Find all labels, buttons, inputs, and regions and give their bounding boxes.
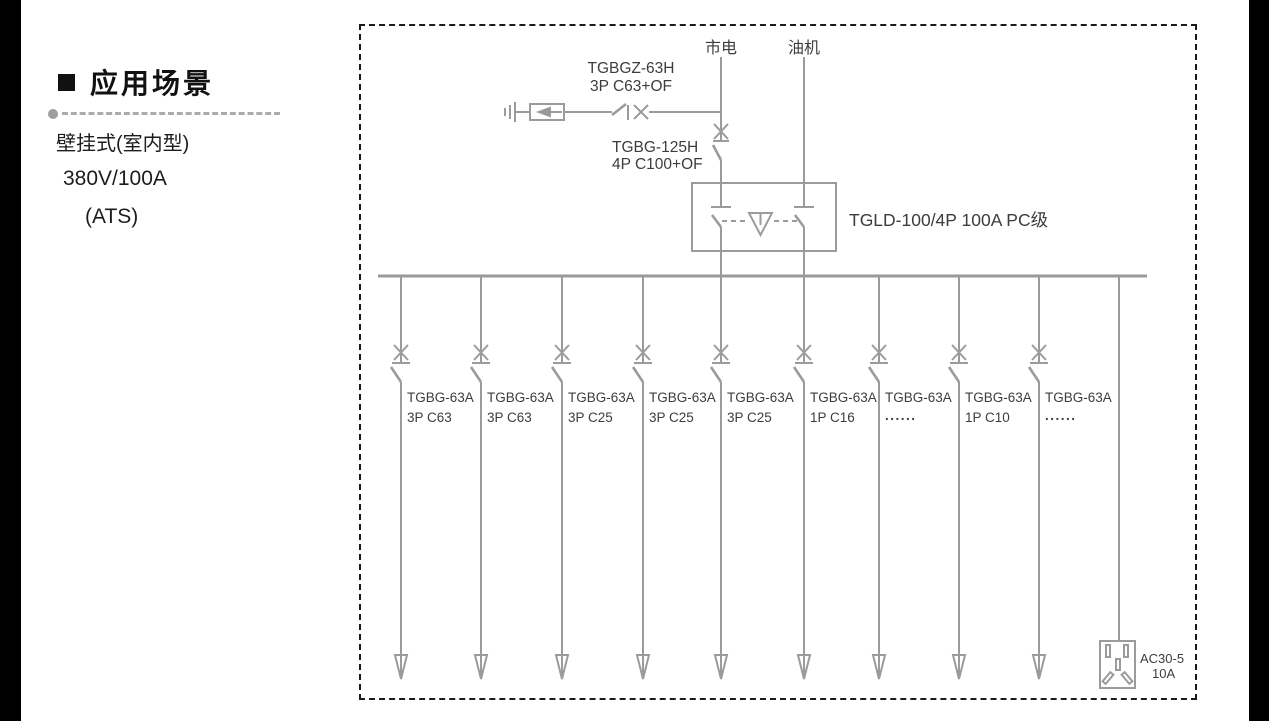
branch-breaker-icon xyxy=(949,276,968,679)
branch-label-spec: 3P C25 xyxy=(727,410,772,425)
generator-label: 油机 xyxy=(788,39,820,57)
branch-label-spec: 3P C63 xyxy=(487,410,532,425)
branch-breaker-icon xyxy=(391,276,410,679)
surge-breaker-label-model: TGBGZ-63H xyxy=(588,60,675,77)
branch-label-model: TGBG-63A xyxy=(568,390,635,405)
diagram-border: 市电 油机 xyxy=(359,24,1197,700)
ats-switch-icon xyxy=(692,183,836,276)
main-breaker-label-spec: 4P C100+OF xyxy=(612,156,703,173)
main-breaker-icon xyxy=(713,124,729,183)
branch-label-spec: 1P C16 xyxy=(810,410,855,425)
branch-breaker-icon xyxy=(552,276,571,679)
one-line-diagram: 市电 油机 xyxy=(361,26,1195,698)
branch-label-model: TGBG-63A xyxy=(965,390,1032,405)
branch-1: TGBG-63A 3P C63 xyxy=(391,276,474,679)
surge-protector-branch: TGBGZ-63H 3P C63+OF xyxy=(505,60,721,122)
branch-breaker-icon xyxy=(711,276,730,679)
square-bullet-icon xyxy=(58,74,75,91)
generator-feed: 油机 xyxy=(788,39,820,183)
branch-label-spec: ...... xyxy=(1045,408,1077,423)
branch-label-model: TGBG-63A xyxy=(810,390,877,405)
branch-breaker-icon xyxy=(471,276,490,679)
branch-3: TGBG-63A 3P C25 xyxy=(552,276,635,679)
branch-breaker-icon xyxy=(794,276,813,679)
branch-9: TGBG-63A ...... xyxy=(1029,276,1112,679)
section-divider xyxy=(62,112,280,115)
branch-label-spec: 3P C25 xyxy=(568,410,613,425)
branch-label-spec: 3P C63 xyxy=(407,410,452,425)
branch-label-model: TGBG-63A xyxy=(407,390,474,405)
spec-line-rating: 380V/100A xyxy=(63,167,167,191)
ground-icon xyxy=(505,102,515,122)
spec-line-mount-type: 壁挂式(室内型) xyxy=(56,127,189,156)
branch-label-model: TGBG-63A xyxy=(1045,390,1112,405)
mains-label: 市电 xyxy=(705,39,737,57)
branch-label-model: TGBG-63A xyxy=(727,390,794,405)
socket-branch: AC30-5 10A xyxy=(1100,276,1184,688)
branch-label-spec: ...... xyxy=(885,408,917,423)
branch-breaker-icon xyxy=(869,276,888,679)
branch-6: TGBG-63A 1P C16 xyxy=(794,276,877,679)
surge-breaker-icon xyxy=(612,104,648,120)
right-black-bar xyxy=(1249,0,1269,721)
ats-label: TGLD-100/4P 100A PC级 xyxy=(849,210,1048,230)
surge-arrester-icon xyxy=(530,104,564,120)
branch-breaker-icon xyxy=(633,276,652,679)
section-heading-label: 应用场景 xyxy=(90,62,214,102)
branch-label-spec: 1P C10 xyxy=(965,410,1010,425)
branch-breaker-icon xyxy=(1029,276,1048,679)
surge-breaker-label-spec: 3P C63+OF xyxy=(590,78,672,95)
left-black-bar xyxy=(0,0,21,721)
spec-line-ats: (ATS) xyxy=(85,205,138,229)
divider-dot-icon xyxy=(48,109,58,119)
branch-label-spec: 3P C25 xyxy=(649,410,694,425)
main-breaker-label-model: TGBG-125H xyxy=(612,139,698,156)
branch-label-model: TGBG-63A xyxy=(885,390,952,405)
branch-7: TGBG-63A ...... xyxy=(869,276,952,679)
branch-label-model: TGBG-63A xyxy=(487,390,554,405)
socket-icon xyxy=(1100,641,1135,688)
branch-4: TGBG-63A 3P C25 xyxy=(633,276,716,679)
socket-label-model: AC30-5 xyxy=(1140,651,1184,666)
branch-8: TGBG-63A 1P C10 xyxy=(949,276,1032,679)
socket-label-rating: 10A xyxy=(1152,666,1175,681)
branch-5: TGBG-63A 3P C25 xyxy=(711,276,794,679)
branch-2: TGBG-63A 3P C63 xyxy=(471,276,554,679)
branch-label-model: TGBG-63A xyxy=(649,390,716,405)
section-heading: 应用场景 xyxy=(58,62,214,102)
